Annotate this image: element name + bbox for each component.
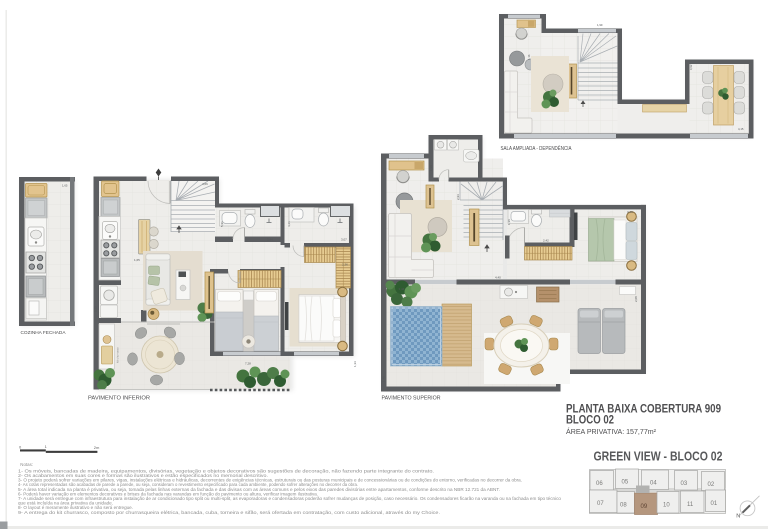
svg-text:11: 11: [687, 502, 694, 508]
svg-text:07: 07: [597, 501, 604, 507]
svg-text:Notas:: Notas:: [20, 462, 33, 467]
svg-text:04: 04: [650, 481, 657, 487]
svg-text:2,08: 2,08: [634, 296, 638, 302]
svg-text:0,92: 0,92: [689, 64, 693, 70]
svg-text:1,99: 1,99: [597, 23, 603, 27]
svg-text:SALA AMPLIADA - DEPENDÊNCIA: SALA AMPLIADA - DEPENDÊNCIA: [501, 144, 572, 152]
svg-text:9- A entrega do kit churrasco,: 9- A entrega do kit churrasco, composto …: [18, 510, 440, 515]
svg-text:kit churrasco: kit churrasco: [116, 347, 120, 363]
svg-text:06: 06: [596, 481, 603, 487]
svg-text:1,65: 1,65: [62, 184, 68, 188]
svg-text:4,66: 4,66: [202, 182, 208, 186]
svg-text:08: 08: [620, 503, 627, 509]
svg-text:3,44: 3,44: [399, 287, 405, 291]
svg-text:05: 05: [622, 480, 629, 486]
svg-text:1,45: 1,45: [382, 376, 386, 382]
svg-text:2m: 2m: [94, 445, 100, 450]
svg-text:1,16: 1,16: [429, 165, 433, 171]
svg-text:3,40: 3,40: [627, 210, 633, 214]
svg-text:4,21: 4,21: [287, 221, 291, 227]
svg-text:5,32: 5,32: [94, 306, 98, 312]
svg-text:COZINHA FECHADA: COZINHA FECHADA: [21, 330, 67, 336]
svg-text:ÁREA PRIVATIVA: 157,77m²: ÁREA PRIVATIVA: 157,77m²: [566, 427, 657, 436]
svg-text:01: 01: [711, 501, 718, 507]
svg-text:1,36: 1,36: [507, 219, 511, 225]
svg-text:GREEN VIEW - BLOCO 02: GREEN VIEW - BLOCO 02: [594, 449, 723, 463]
svg-text:2,36: 2,36: [342, 263, 348, 267]
svg-text:09: 09: [641, 504, 648, 510]
svg-text:5,91: 5,91: [220, 221, 224, 227]
svg-text:1,16: 1,16: [527, 54, 531, 60]
svg-text:PAVIMENTO INFERIOR: PAVIMENTO INFERIOR: [88, 396, 150, 402]
svg-text:PAVIMENTO SUPERIOR: PAVIMENTO SUPERIOR: [382, 396, 441, 402]
svg-text:2,44: 2,44: [267, 238, 273, 242]
svg-text:10: 10: [663, 503, 670, 509]
svg-text:4,15: 4,15: [738, 127, 744, 131]
svg-text:4,40: 4,40: [495, 276, 501, 280]
svg-text:1,65: 1,65: [134, 258, 140, 262]
svg-text:7,28: 7,28: [245, 362, 251, 366]
svg-text:1,33: 1,33: [353, 361, 357, 367]
svg-text:03: 03: [681, 481, 688, 487]
svg-text:N: N: [736, 513, 740, 519]
svg-text:3,07: 3,07: [341, 238, 347, 242]
svg-text:02: 02: [708, 482, 715, 488]
svg-text:2,93: 2,93: [456, 194, 460, 200]
svg-text:2,42: 2,42: [543, 239, 549, 243]
svg-text:BLOCO 02: BLOCO 02: [566, 413, 614, 427]
